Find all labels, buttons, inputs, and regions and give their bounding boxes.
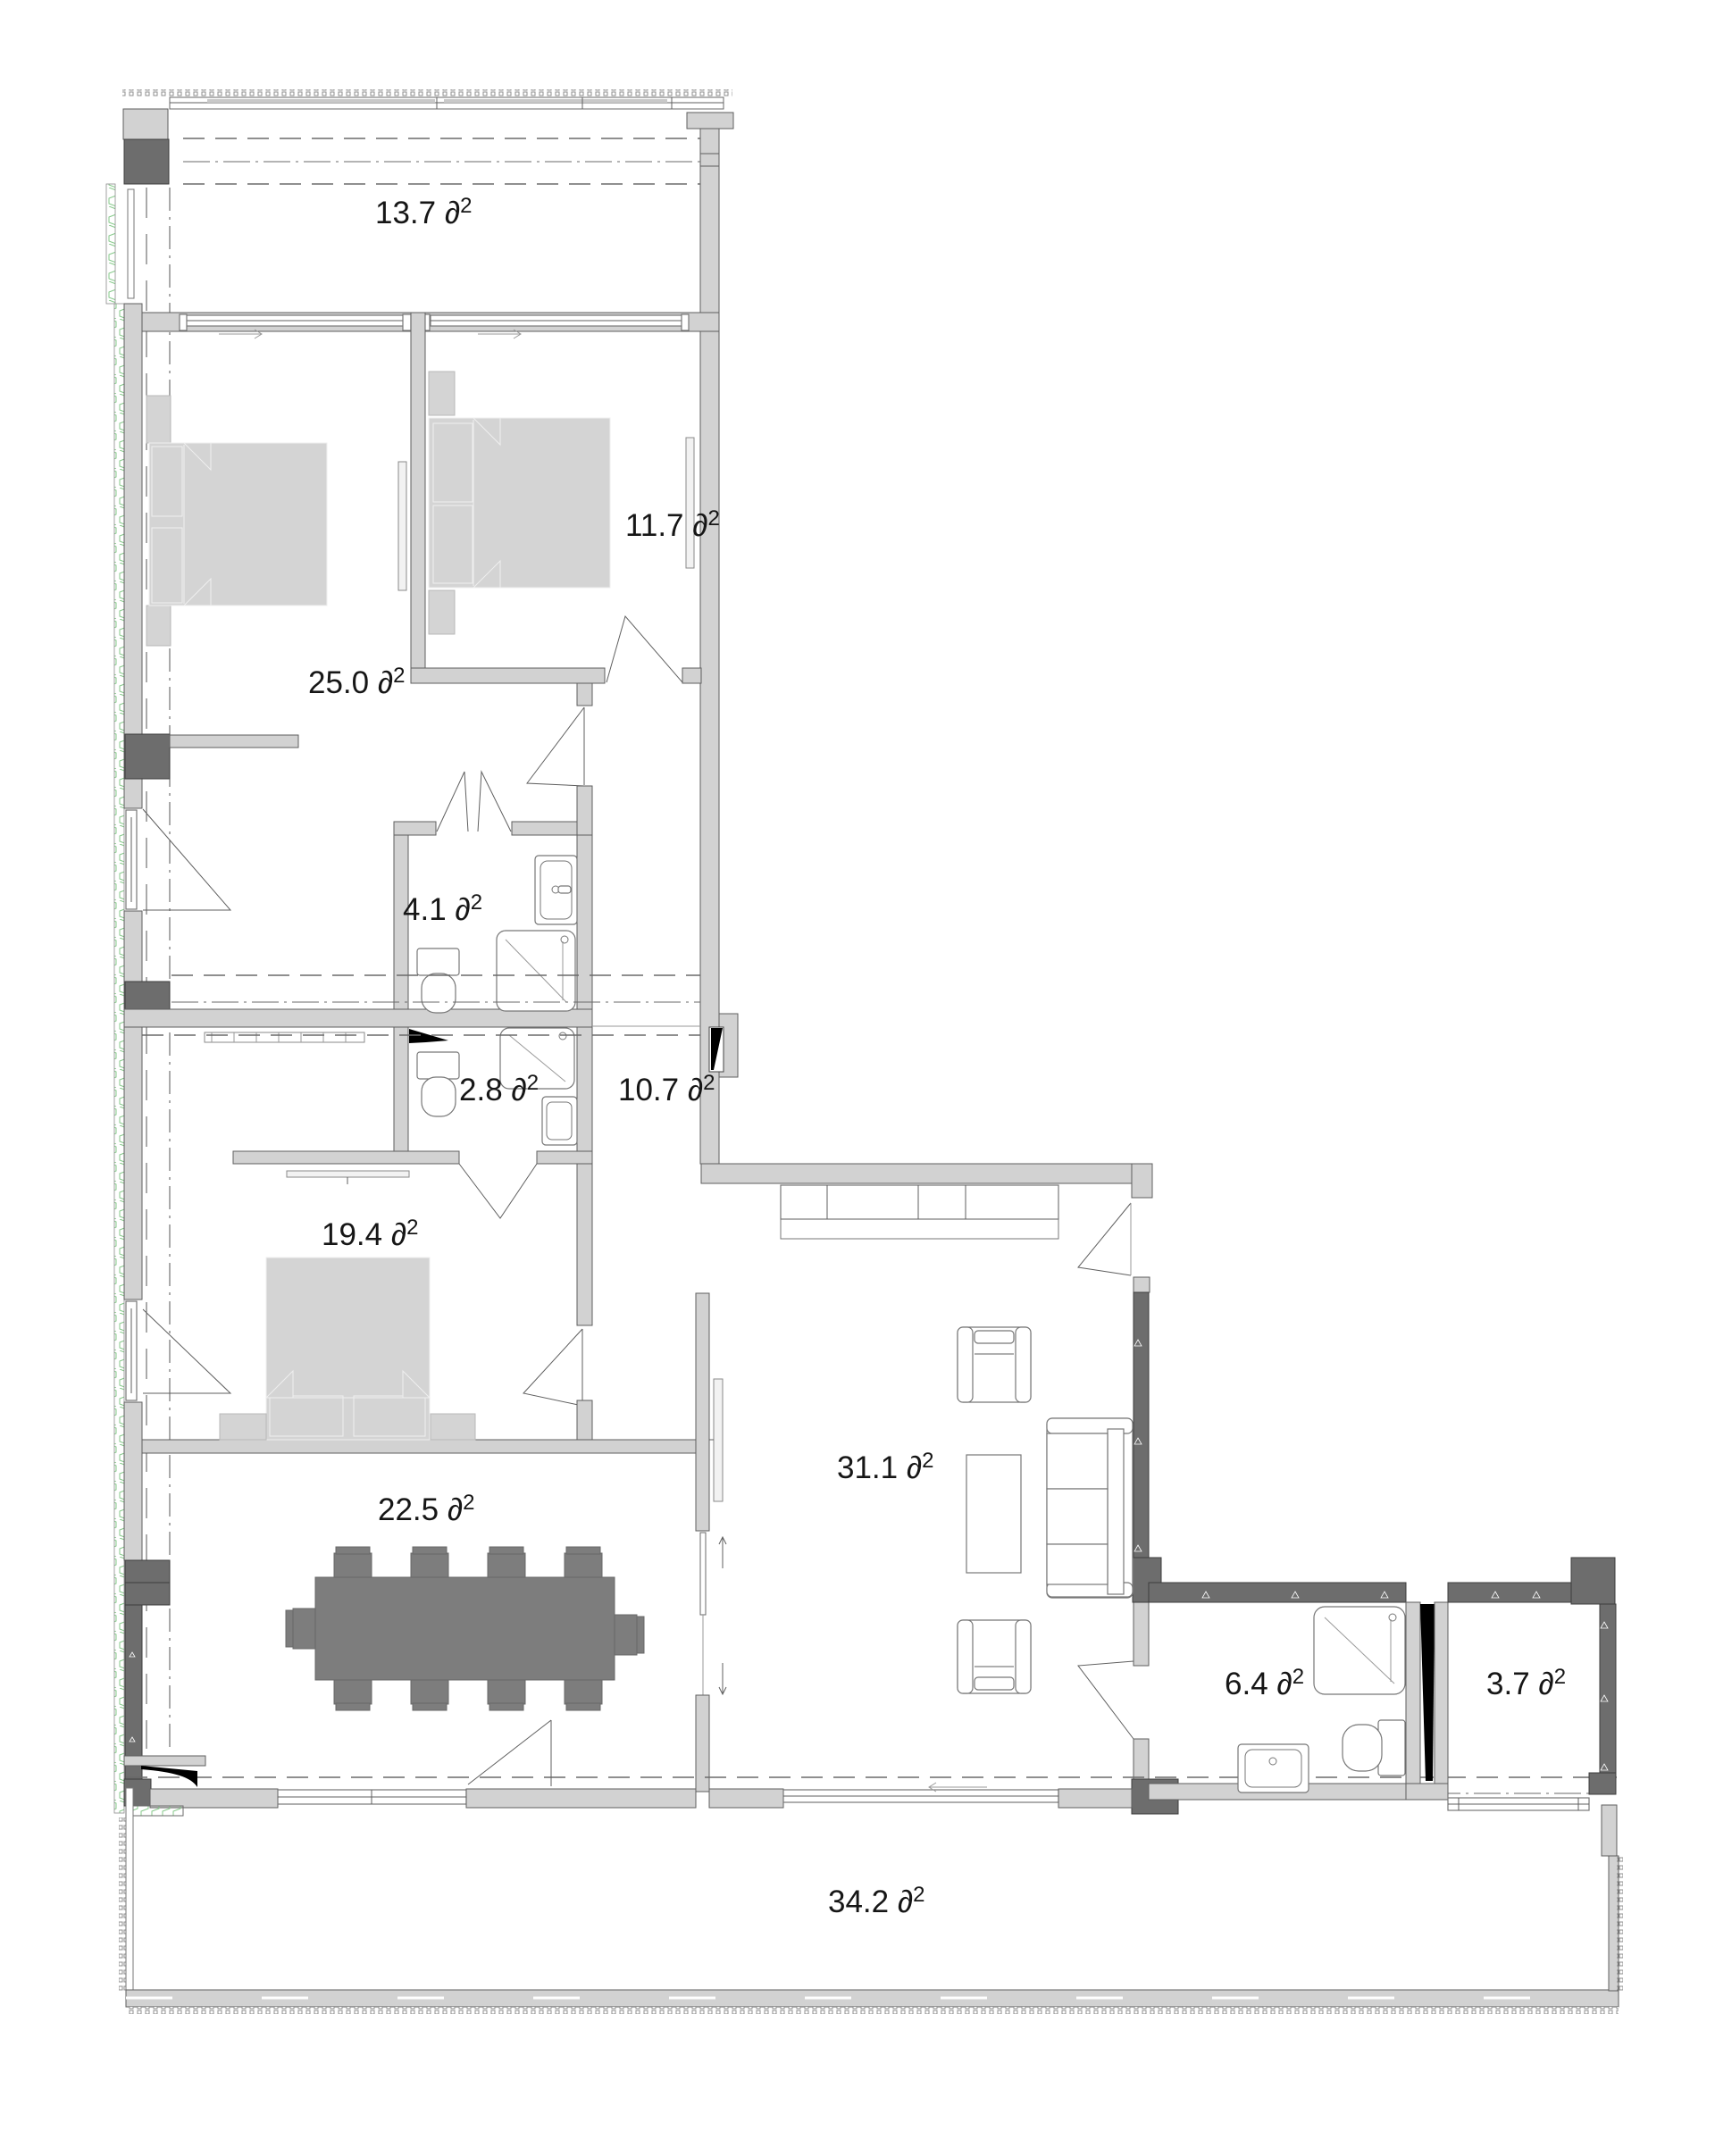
svg-text:31.1 ∂2: 31.1 ∂2 — [837, 1449, 934, 1485]
svg-text:19.4 ∂2: 19.4 ∂2 — [322, 1216, 419, 1252]
svg-text:11.7 ∂2: 11.7 ∂2 — [625, 506, 720, 543]
svg-text:25.0 ∂2: 25.0 ∂2 — [308, 664, 406, 700]
svg-text:13.7 ∂2: 13.7 ∂2 — [375, 194, 473, 230]
svg-text:10.7 ∂2: 10.7 ∂2 — [618, 1071, 715, 1107]
svg-text:34.2 ∂2: 34.2 ∂2 — [828, 1883, 925, 1919]
svg-text:22.5 ∂2: 22.5 ∂2 — [378, 1491, 475, 1527]
